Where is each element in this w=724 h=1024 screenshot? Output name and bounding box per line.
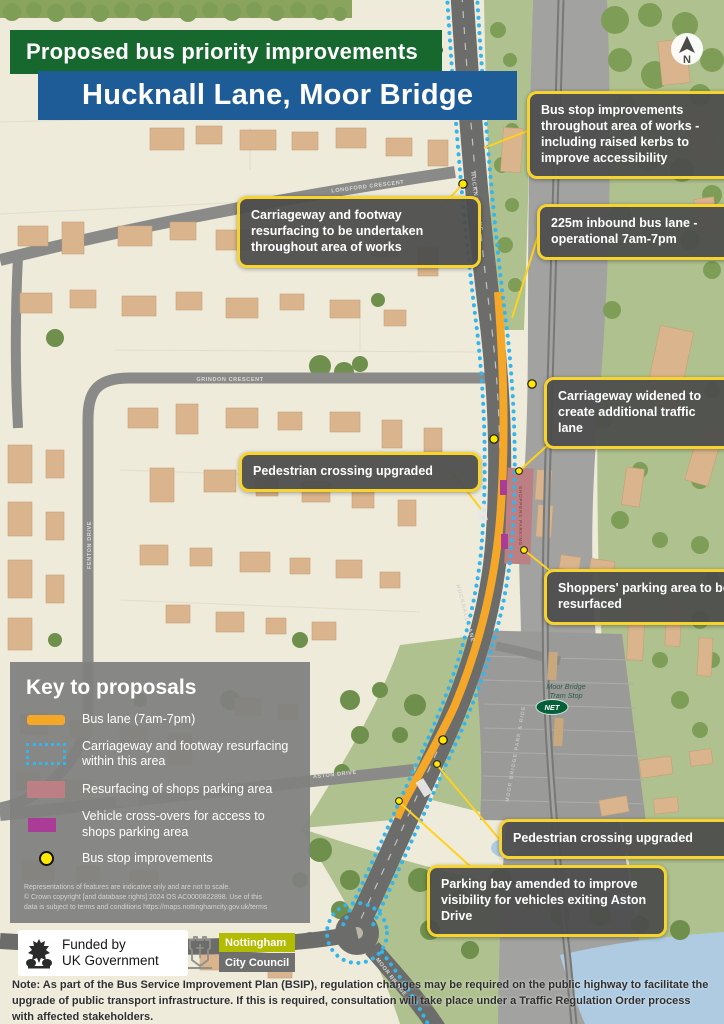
header-kicker: Proposed bus priority improvements bbox=[10, 30, 442, 74]
north-arrow-letter: N bbox=[683, 54, 691, 66]
council-type: City Council bbox=[219, 953, 295, 972]
key-item-label: Carriageway and footway resurfacing with… bbox=[82, 739, 296, 770]
funded-by-line1: Funded by bbox=[62, 937, 159, 953]
callout-carriageway-widened: Carriageway widened to create additional… bbox=[544, 377, 724, 449]
key-panel: Key to proposals Bus lane (7am-7pm) Carr… bbox=[10, 662, 310, 923]
shops-parking-swatch bbox=[27, 781, 65, 798]
tram-platform bbox=[553, 718, 563, 746]
council-name: Nottingham bbox=[219, 933, 295, 952]
bus-stop-swatch bbox=[39, 851, 54, 866]
key-item-label: Resurfacing of shops parking area bbox=[82, 782, 272, 798]
nottingham-crest-icon bbox=[186, 934, 214, 972]
tram-platform bbox=[547, 652, 557, 680]
shoppers-parking-label: SHOPPERS PARKING bbox=[518, 486, 523, 546]
key-item-label: Bus lane (7am-7pm) bbox=[82, 712, 195, 728]
page-title: Hucknall Lane, Moor Bridge bbox=[38, 71, 517, 120]
key-item-bus-stops: Bus stop improvements bbox=[24, 851, 296, 867]
bus-lane-swatch bbox=[27, 715, 65, 725]
crossovers-swatch bbox=[28, 818, 56, 832]
vehicle-crossover bbox=[500, 480, 507, 495]
disclaimer-line: © Crown copyright [and database rights] … bbox=[24, 893, 296, 903]
street-label-grindon: GRINDON CRESCENT bbox=[196, 377, 263, 383]
callout-pedestrian-crossing-2: Pedestrian crossing upgraded bbox=[499, 819, 724, 859]
callout-inbound-bus-lane: 225m inbound bus lane - operational 7am-… bbox=[537, 204, 724, 260]
key-item-label: Bus stop improvements bbox=[82, 851, 213, 867]
resurfacing-swatch bbox=[26, 743, 66, 765]
key-title: Key to proposals bbox=[26, 676, 296, 700]
callout-shoppers-parking: Shoppers' parking area to be resurfaced bbox=[544, 569, 724, 625]
note-label: Note: bbox=[12, 979, 40, 991]
nottingham-council-logo: Nottingham City Council bbox=[186, 933, 295, 972]
note-text: As part of the Bus Service Improvement P… bbox=[12, 979, 708, 1023]
key-item-bus-lane: Bus lane (7am-7pm) bbox=[24, 712, 296, 728]
callout-resurfacing: Carriageway and footway resurfacing to b… bbox=[237, 196, 481, 268]
street-label-fenton: FENTON DRIVE bbox=[87, 521, 93, 569]
key-item-shops-parking: Resurfacing of shops parking area bbox=[24, 781, 296, 798]
funded-by-line2: UK Government bbox=[62, 953, 159, 969]
key-item-resurfacing: Carriageway and footway resurfacing with… bbox=[24, 739, 296, 770]
poster: SHOPPERS PARKING bbox=[0, 0, 724, 1024]
map-disclaimer: Representations of features are indicati… bbox=[24, 883, 296, 913]
key-item-crossovers: Vehicle cross-overs for access to shops … bbox=[24, 809, 296, 840]
uk-government-logo: Funded by UK Government bbox=[18, 930, 188, 976]
net-logo-text: NET bbox=[545, 703, 561, 712]
tram-stop-label-2: Tram Stop bbox=[549, 691, 582, 700]
disclaimer-line: data is subject to terms and conditions … bbox=[24, 903, 296, 913]
uk-government-crest-icon bbox=[24, 936, 54, 970]
vehicle-crossover bbox=[501, 534, 508, 549]
callout-pedestrian-crossing-1: Pedestrian crossing upgraded bbox=[239, 452, 481, 492]
disclaimer-line: Representations of features are indicati… bbox=[24, 883, 296, 893]
key-item-label: Vehicle cross-overs for access to shops … bbox=[82, 809, 296, 840]
callout-bus-stop-improvements: Bus stop improvements throughout area of… bbox=[527, 91, 724, 179]
tram-stop-label-1: Moor Bridge bbox=[546, 682, 585, 691]
callout-parking-bay: Parking bay amended to improve visibilit… bbox=[427, 865, 667, 937]
bsip-note: Note: As part of the Bus Service Improve… bbox=[12, 978, 712, 1024]
